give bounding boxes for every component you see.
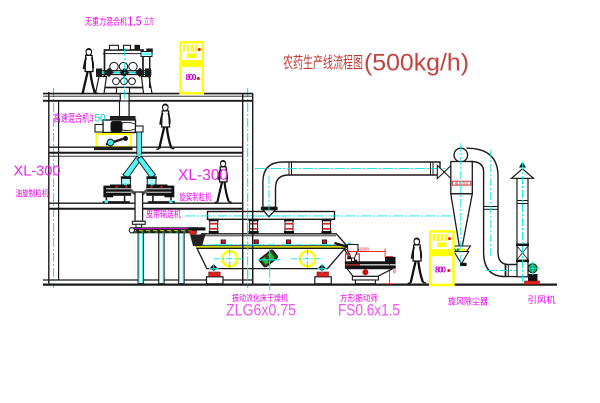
svg-text:农药生产线流程图: 农药生产线流程图 (283, 54, 363, 72)
svg-text:50: 50 (95, 113, 106, 125)
svg-text:1500: 1500 (359, 247, 370, 252)
svg-text:XL-300: XL-300 (14, 163, 61, 180)
svg-text:Φ800: Φ800 (455, 181, 469, 186)
svg-text:FS0.6x1.5: FS0.6x1.5 (338, 302, 400, 320)
svg-text:ZLG6x0.75: ZLG6x0.75 (226, 302, 296, 320)
svg-text:引风机: 引风机 (528, 294, 556, 305)
svg-text:旋桨制粒机: 旋桨制粒机 (180, 192, 212, 204)
svg-text:无重力混合机: 无重力混合机 (85, 16, 127, 28)
svg-text:皮带输送机: 皮带输送机 (146, 209, 181, 221)
svg-text:(500kg/h): (500kg/h) (364, 50, 469, 77)
svg-text:800: 800 (435, 266, 447, 275)
svg-text:1.5: 1.5 (128, 15, 142, 29)
svg-text:立方: 立方 (144, 16, 154, 27)
svg-text:油旋制粒机: 油旋制粒机 (16, 188, 49, 199)
svg-text:800: 800 (186, 73, 198, 82)
svg-text:旋风除尘器: 旋风除尘器 (448, 296, 488, 307)
svg-text:XL-300: XL-300 (178, 167, 228, 184)
svg-text:高速混合机3: 高速混合机3 (54, 112, 94, 125)
